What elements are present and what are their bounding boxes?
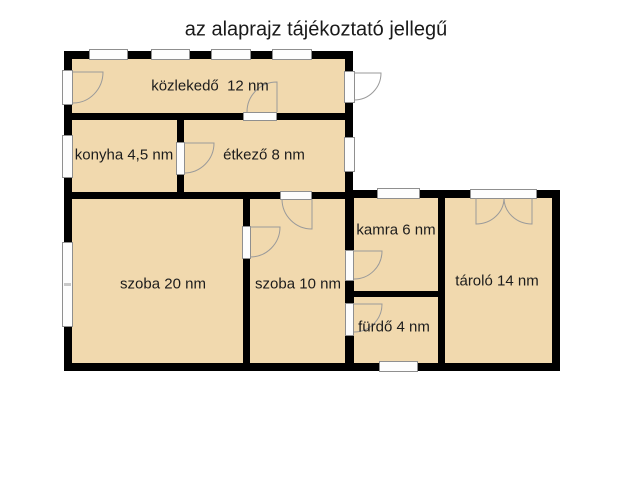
room-label-kamra: kamra 6 nm bbox=[356, 222, 435, 239]
door-opening-szoba10-kamra bbox=[345, 250, 354, 281]
door-opening-szoba20-szoba10 bbox=[242, 226, 251, 259]
wall-kamra-tarolo bbox=[438, 198, 445, 363]
window-top-3 bbox=[211, 49, 251, 60]
window-etkezo bbox=[344, 137, 355, 172]
room-label-etkezo: étkező 8 nm bbox=[223, 147, 305, 164]
window-szoba20 bbox=[62, 242, 73, 327]
door-opening-exit-right bbox=[344, 71, 355, 103]
wall-kozlekedo-bottom bbox=[72, 113, 346, 120]
plan-title: az alaprajz tájékoztató jellegű bbox=[185, 19, 447, 42]
room-label-furdo: fürdő 4 nm bbox=[358, 319, 430, 336]
room-label-szoba10: szoba 10 nm bbox=[255, 276, 341, 293]
window-top-1 bbox=[89, 49, 128, 60]
door-opening-etkezo-szoba10 bbox=[280, 191, 312, 200]
window-top-2 bbox=[151, 49, 190, 60]
window-kamra bbox=[377, 188, 420, 199]
floorplan: az alaprajz tájékoztató jellegű bbox=[0, 0, 640, 480]
wall-szoba20-szoba10 bbox=[243, 199, 250, 363]
door-opening-szoba10-furdo bbox=[345, 303, 354, 336]
door-opening-tarolo-double bbox=[470, 189, 537, 199]
door-opening-konyha-etkezo bbox=[176, 142, 185, 175]
door-opening-kozlekedo-etkezo bbox=[243, 112, 277, 121]
room-label-tarolo: tároló 14 nm bbox=[455, 273, 538, 290]
door-opening-entrance-left bbox=[62, 70, 73, 105]
window-furdo bbox=[379, 361, 418, 372]
wall-kamra-furdo bbox=[353, 291, 439, 297]
building-main-block bbox=[64, 51, 353, 371]
room-label-kozlekedo: közlekedő 12 nm bbox=[151, 78, 269, 95]
room-label-szoba20: szoba 20 nm bbox=[120, 276, 206, 293]
window-top-4 bbox=[272, 49, 312, 60]
window-konyha bbox=[62, 135, 73, 178]
room-label-konyha: konyha 4,5 nm bbox=[75, 147, 173, 164]
door-swing-exit-right bbox=[354, 73, 381, 100]
